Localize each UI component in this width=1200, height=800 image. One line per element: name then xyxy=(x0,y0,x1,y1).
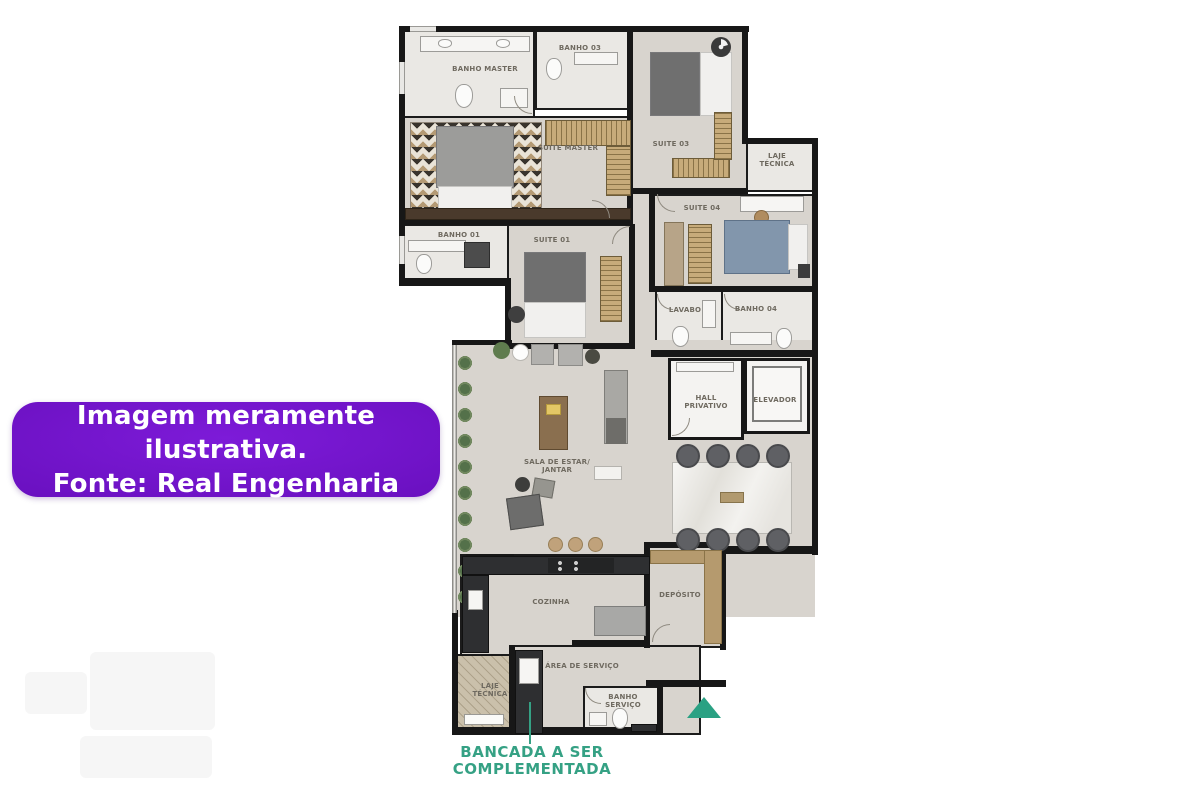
wardrobe xyxy=(545,120,631,146)
bed-suite-01 xyxy=(524,252,586,304)
toilet xyxy=(776,328,792,349)
wardrobe xyxy=(606,146,631,196)
bed-pillows xyxy=(438,186,512,210)
wall-segment xyxy=(742,26,748,144)
bench xyxy=(594,466,622,480)
callout-leader-line xyxy=(529,702,531,744)
label-line: LAJE xyxy=(759,152,794,160)
wall-segment xyxy=(627,26,749,32)
sofa xyxy=(506,494,544,530)
bed-pillows xyxy=(524,302,586,338)
dining-chair xyxy=(736,444,760,468)
label-hall-privativo: HALL PRIVATIVO xyxy=(684,394,727,410)
wall-segment xyxy=(742,138,818,144)
callout-line-2: COMPLEMENTADA xyxy=(452,761,612,778)
cabinet xyxy=(664,222,684,286)
toilet xyxy=(416,254,432,274)
washer xyxy=(519,658,539,684)
kitchen-counter xyxy=(462,575,489,653)
bed-suite-03 xyxy=(650,52,700,116)
vanity xyxy=(408,240,466,252)
label-suite-master: SUITE MASTER xyxy=(538,144,598,152)
hall-console xyxy=(676,362,734,372)
label-sala: SALA DE ESTAR/ JANTAR xyxy=(524,458,590,474)
label-banho-03: BANHO 03 xyxy=(559,44,601,52)
sink xyxy=(496,39,510,48)
plant xyxy=(493,342,510,359)
label-suite-03: SUITE 03 xyxy=(653,140,690,148)
vanity xyxy=(702,300,716,328)
label-line: SALA DE ESTAR/ xyxy=(524,458,590,466)
label-line: SERVIÇO xyxy=(605,701,641,709)
label-suite-01: SUITE 01 xyxy=(534,236,571,244)
armchair xyxy=(531,344,554,365)
label-line: HALL xyxy=(684,394,727,402)
label-line: LAJE xyxy=(472,682,507,690)
bancada-callout: BANCADA A SER COMPLEMENTADA xyxy=(452,744,612,778)
label-deposito: DEPÓSITO xyxy=(659,591,701,599)
dining-chair xyxy=(706,528,730,552)
sink xyxy=(438,39,452,48)
floor-plan-image: BANHO MASTER BANHO 03 SUITE MASTER SUITE… xyxy=(0,0,1200,800)
wall-segment xyxy=(629,188,748,194)
vanity xyxy=(730,332,772,345)
dining-chair xyxy=(676,444,700,468)
wardrobe xyxy=(672,158,730,178)
label-line: BANHO xyxy=(605,693,641,701)
dining-chair xyxy=(736,528,760,552)
ceiling-fan-icon xyxy=(710,36,732,58)
dining-chair xyxy=(706,444,730,468)
cooktop xyxy=(548,558,614,573)
dining-chair xyxy=(766,444,790,468)
watermark xyxy=(90,652,215,730)
label-line: TÉCNICA xyxy=(472,690,507,698)
label-banho-01: BANHO 01 xyxy=(438,231,480,239)
vent xyxy=(464,714,504,725)
label-banho-master: BANHO MASTER xyxy=(452,65,518,73)
label-area-servico: ÁREA DE SERVIÇO xyxy=(545,662,619,670)
bed-pillows xyxy=(700,52,732,116)
label-banho-04: BANHO 04 xyxy=(735,305,777,313)
label-laje-tecnica-bottom: LAJE TÉCNICA xyxy=(472,682,507,698)
armchair xyxy=(558,344,583,366)
label-elevador: ELEVADOR xyxy=(753,396,796,404)
decor-tray xyxy=(546,404,561,415)
watermark xyxy=(25,672,87,714)
label-laje-tecnica-top: LAJE TÉCNICA xyxy=(759,152,794,168)
toilet xyxy=(612,708,628,729)
wardrobe xyxy=(714,112,732,160)
window xyxy=(399,62,405,94)
wall-segment xyxy=(399,278,511,286)
bed-suite-master xyxy=(436,126,514,188)
label-line: TÉCNICA xyxy=(759,160,794,168)
wall-segment xyxy=(812,138,818,555)
toilet xyxy=(546,58,562,80)
service-bench xyxy=(631,724,657,732)
toilet xyxy=(455,84,473,108)
tv xyxy=(606,418,626,444)
label-lavabo: LAVABO xyxy=(669,306,701,314)
wardrobe xyxy=(688,224,712,284)
kitchen-island xyxy=(594,606,646,636)
storage-shelf xyxy=(704,550,722,644)
elevator-cab xyxy=(752,366,802,422)
dining-chair xyxy=(766,528,790,552)
armchair xyxy=(508,306,525,323)
bed-suite-04 xyxy=(724,220,790,274)
side-table xyxy=(515,477,530,492)
sink xyxy=(589,712,607,726)
wall-segment xyxy=(651,350,815,357)
callout-line-1: BANCADA A SER xyxy=(452,744,612,761)
kitchen-sink xyxy=(468,590,483,610)
double-vanity xyxy=(420,36,530,52)
wall-segment xyxy=(572,640,650,647)
dining-chair xyxy=(676,528,700,552)
shower xyxy=(464,242,490,268)
source-disclaimer-banner: Imagem meramente ilustrativa. Fonte: Rea… xyxy=(12,402,440,497)
window xyxy=(410,26,436,32)
wardrobe xyxy=(600,256,622,322)
label-banho-servico: BANHO SERVIÇO xyxy=(605,693,641,709)
floor-lamp xyxy=(512,344,529,361)
window xyxy=(399,236,405,264)
banner-line-1: Imagem meramente ilustrativa. xyxy=(12,399,440,467)
bar-stool xyxy=(588,537,603,552)
centerpiece xyxy=(720,492,744,503)
label-line: JANTAR xyxy=(524,466,590,474)
wall-segment xyxy=(452,610,458,735)
watermark xyxy=(80,736,212,778)
toilet xyxy=(672,326,689,347)
wall-segment xyxy=(649,192,655,292)
vanity xyxy=(574,52,618,65)
label-suite-04: SUITE 04 xyxy=(684,204,721,212)
side-table xyxy=(585,349,600,364)
desk xyxy=(740,196,804,212)
bar-stool xyxy=(568,537,583,552)
wall-segment xyxy=(651,286,815,292)
banner-line-2: Fonte: Real Engenharia xyxy=(53,467,400,501)
bar-stool xyxy=(548,537,563,552)
north-arrow xyxy=(687,697,721,718)
label-line: PRIVATIVO xyxy=(684,402,727,410)
label-cozinha: COZINHA xyxy=(532,598,569,606)
nightstand xyxy=(798,264,810,278)
